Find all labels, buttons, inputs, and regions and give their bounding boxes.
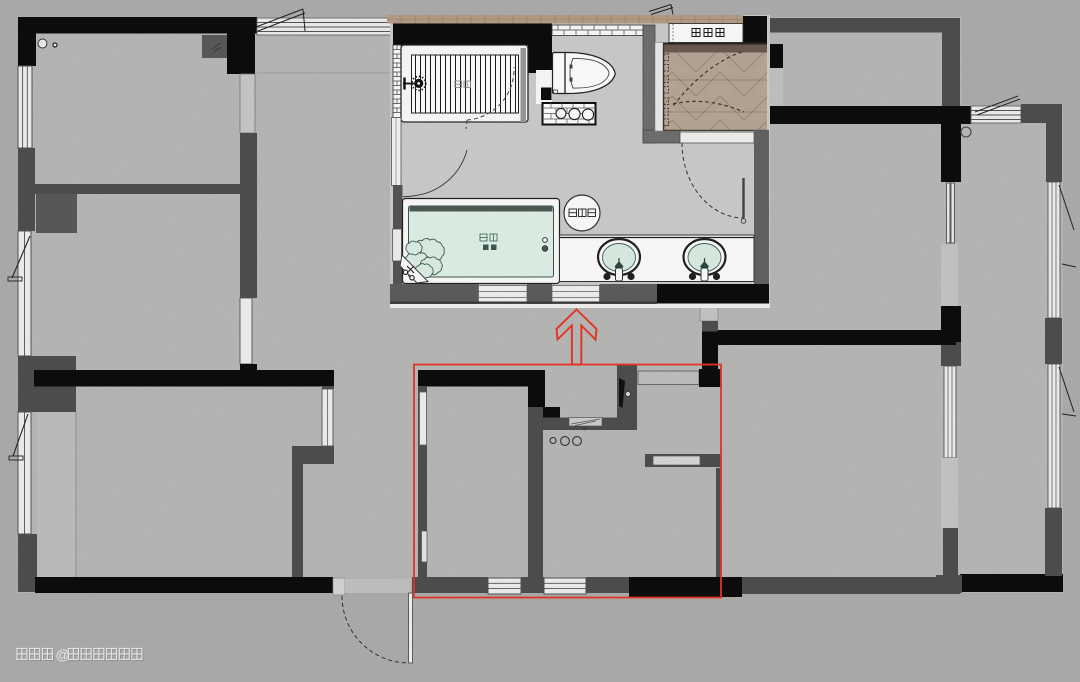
svg-text:@: @ [56, 647, 70, 663]
